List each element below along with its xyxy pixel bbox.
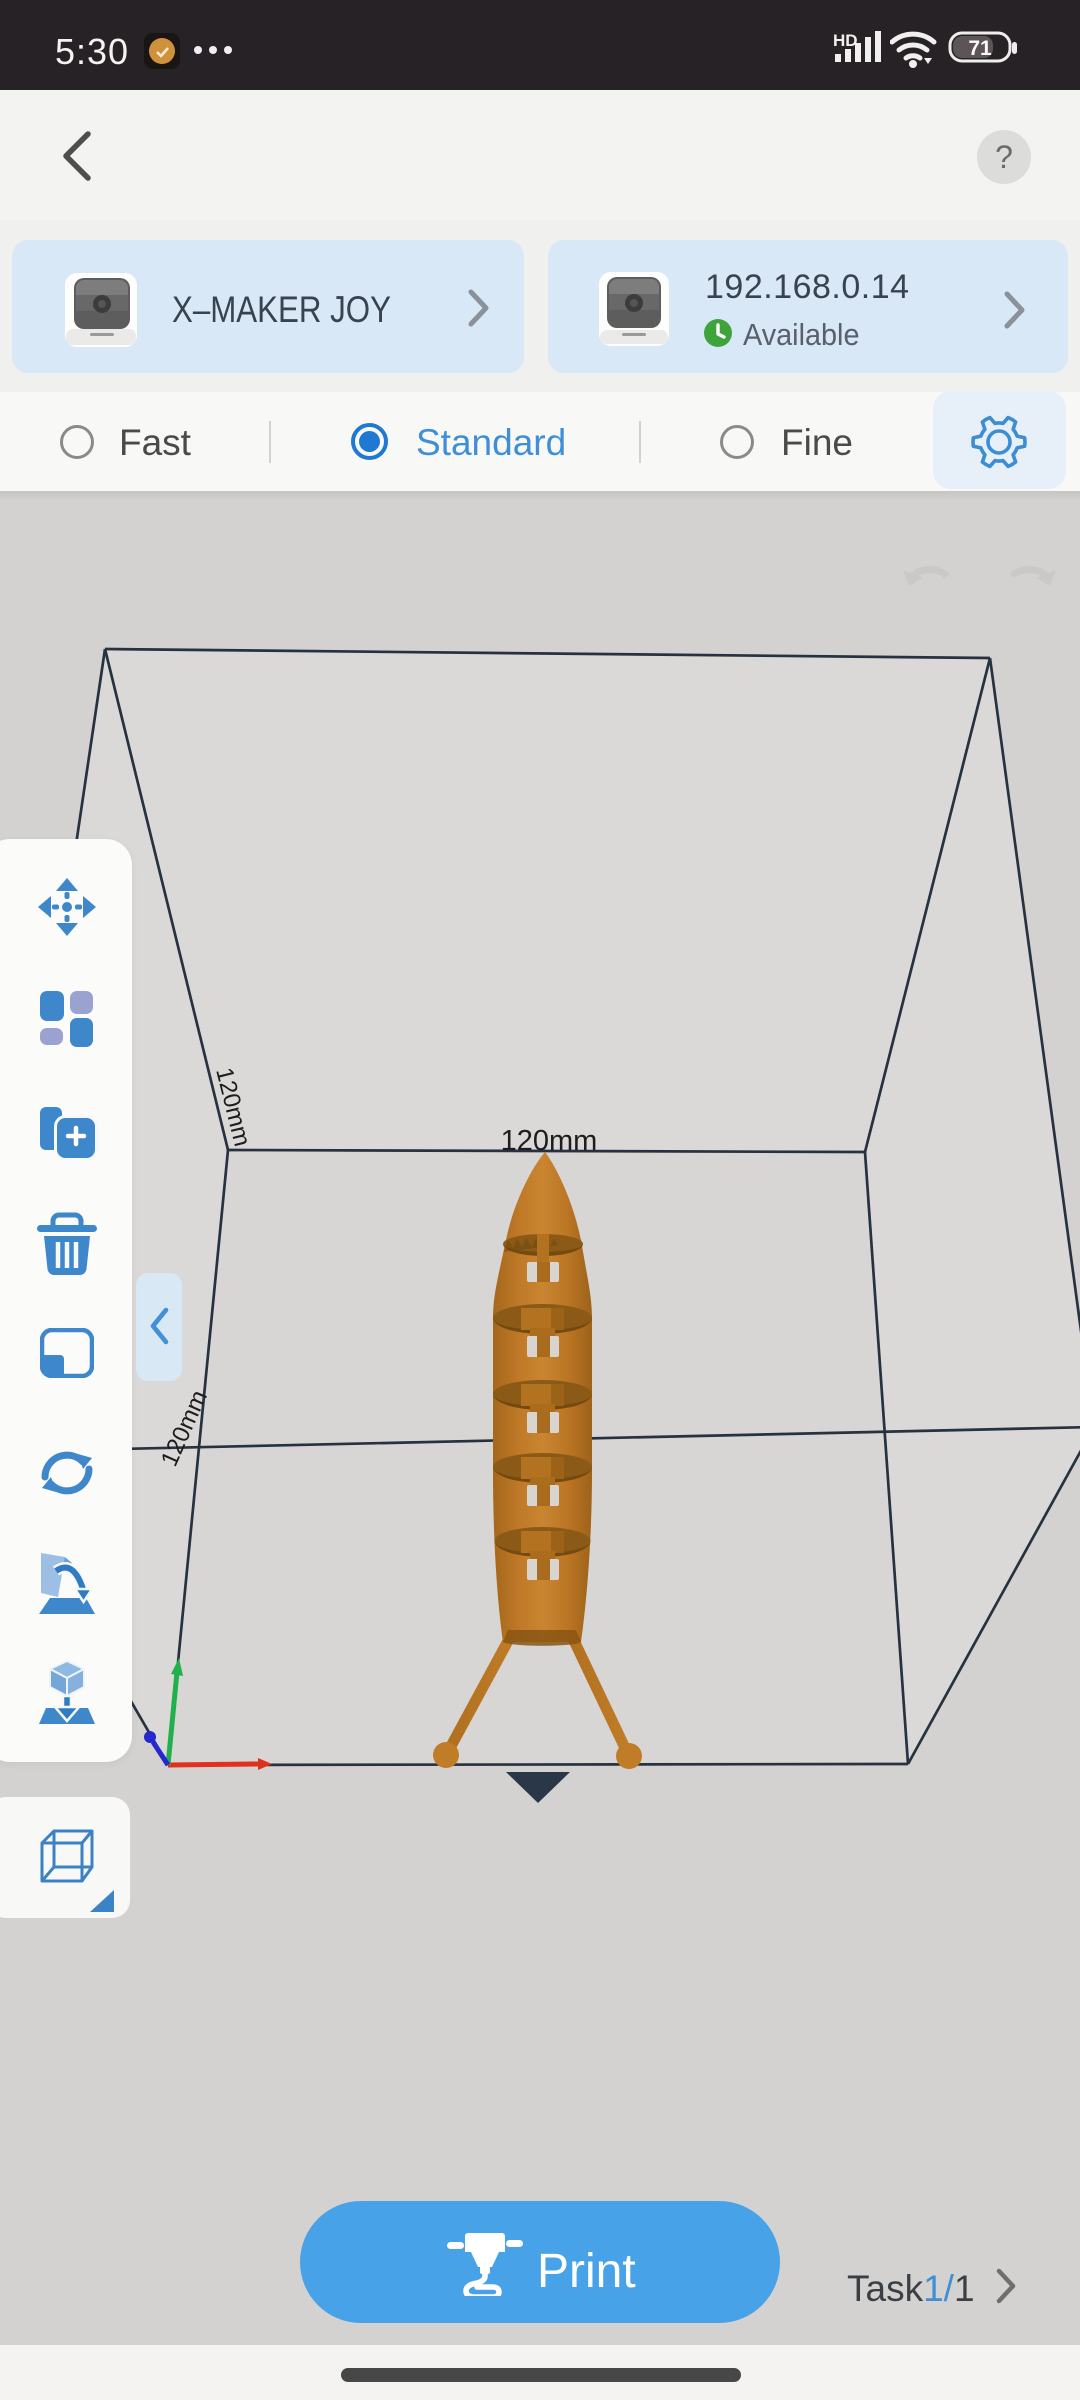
svg-text:HD: HD xyxy=(833,31,858,50)
svg-text:71: 71 xyxy=(968,37,992,60)
svg-text:120mm: 120mm xyxy=(501,1125,598,1157)
